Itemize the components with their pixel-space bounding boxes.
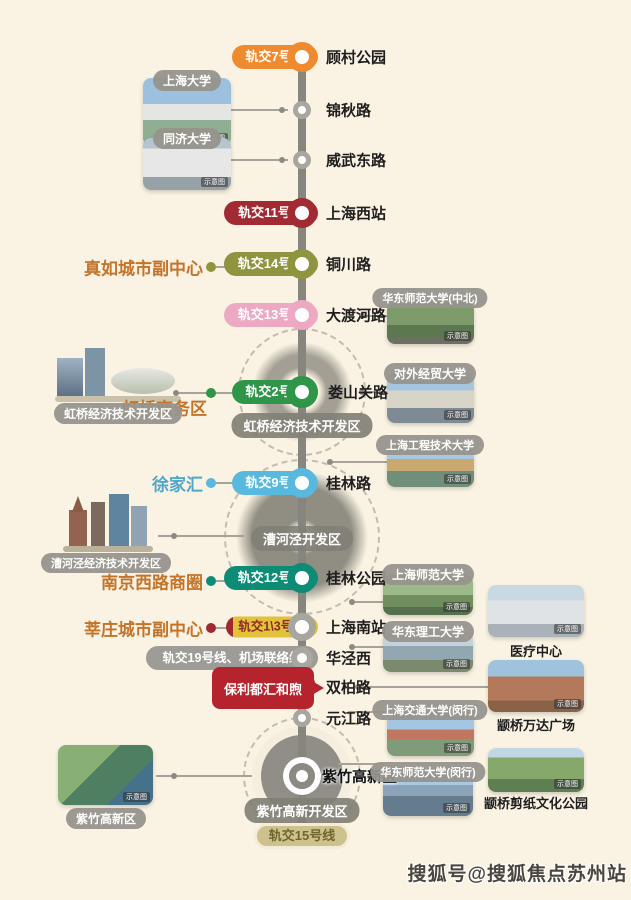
photo-label: 漕河泾经济技术开发区 — [41, 553, 171, 573]
photo-label: 华东理工大学 — [382, 621, 474, 642]
connector-dot — [279, 157, 285, 163]
building-silhouette — [57, 358, 83, 396]
photo-tag: 示意图 — [554, 779, 581, 789]
station-dot-gucun-park — [287, 42, 317, 72]
photo-zhuanqiao-papercut-park: 示意图 — [488, 748, 584, 792]
photo-ecnu-zhongbei: 示意图 — [387, 302, 474, 344]
building-silhouette — [131, 506, 147, 546]
station-dot-daduhe-rd — [287, 300, 317, 330]
station-label: 华泾西 — [326, 648, 371, 669]
area-dot — [206, 623, 216, 633]
poi-caption: 医疗中心 — [510, 641, 562, 660]
station-dot-shanghai-south — [288, 613, 316, 641]
station-label: 双柏路 — [326, 677, 371, 698]
photo-label: 上海大学 — [153, 70, 221, 91]
building-silhouette — [69, 510, 87, 546]
station-label: 桂林公园 — [326, 568, 386, 589]
area-label-xujiahui: 徐家汇 — [152, 471, 203, 496]
connector-line — [330, 461, 387, 463]
area-label-xinzhuang: 莘庄城市副中心 — [84, 616, 203, 641]
watermark: 搜狐号@搜狐焦点苏州站 — [407, 859, 627, 886]
connector-dot — [171, 533, 177, 539]
station-dot-tongchuan-rd — [287, 249, 317, 279]
photo-tag: 示意图 — [443, 803, 470, 813]
building-silhouette — [85, 348, 105, 396]
station-label: 锦秋路 — [326, 100, 371, 121]
collage-xujiahui-buildings — [63, 488, 155, 554]
station-target-zizhu-inner — [289, 763, 315, 789]
station-dot-guilin-park — [287, 563, 317, 593]
station-dot-jinqiu-rd — [293, 101, 311, 119]
photo-label: 华东师范大学(闵行) — [370, 762, 485, 782]
area-dot — [206, 576, 216, 586]
photo-label: 上海师范大学 — [382, 564, 474, 585]
connector-dot — [327, 459, 333, 465]
station-label: 威武东路 — [326, 150, 386, 171]
area-label-zhenru: 真如城市副中心 — [84, 255, 203, 280]
station-dot-weiwu-east-rd — [293, 151, 311, 169]
connector-line — [352, 601, 383, 603]
transit-infographic: 轨交7号线 轨交11号线 轨交14号线 轨交13号线 轨交2号线 轨交9号线 轨… — [0, 0, 631, 900]
station-label: 元江路 — [326, 708, 371, 729]
building-silhouette — [72, 496, 84, 512]
station-label: 娄山关路 — [328, 382, 388, 403]
hub-label-hongqiao: 虹桥经济技术开发区 — [231, 413, 372, 438]
photo-label: 上海交通大学(闵行) — [372, 700, 487, 720]
photo-tag: 示意图 — [443, 659, 470, 669]
photo-medical-center: 示意图 — [488, 585, 584, 637]
photo-tag: 示意图 — [554, 624, 581, 634]
photo-tag: 示意图 — [444, 410, 471, 420]
area-dot — [206, 262, 216, 272]
line-badge-15: 轨交15号线 — [254, 823, 350, 849]
poi-caption: 颛桥剪纸文化公园 — [484, 793, 588, 812]
photo-zhuanqiao-wanda: 示意图 — [488, 660, 584, 712]
photo-label: 紫竹高新区 — [66, 808, 146, 829]
building-silhouette — [63, 546, 153, 552]
station-label: 铜川路 — [326, 254, 371, 275]
photo-tag: 示意图 — [123, 792, 150, 802]
photo-tag: 示意图 — [444, 743, 471, 753]
station-dot-huajing-west — [291, 647, 313, 669]
poi-caption: 颛桥万达广场 — [497, 715, 575, 734]
station-label: 桂林路 — [326, 473, 371, 494]
connector-line — [358, 686, 488, 688]
photo-label: 同济大学 — [153, 128, 221, 149]
connector-dot — [279, 107, 285, 113]
building-silhouette — [91, 502, 105, 546]
station-dot-yuanjiang-rd — [293, 709, 311, 727]
hub-label-caohejing: 漕河泾开发区 — [251, 526, 353, 551]
photo-zizhu-hitech-zone: 示意图 — [58, 745, 153, 805]
station-dot-shanghai-west — [287, 198, 317, 228]
photo-tag: 示意图 — [554, 699, 581, 709]
station-label: 大渡河路 — [326, 305, 386, 326]
connector-dot — [171, 773, 177, 779]
project-box-poly: 保利都汇和煦 — [212, 667, 314, 709]
building-silhouette — [111, 368, 175, 394]
area-dot — [206, 478, 216, 488]
photo-tag: 示意图 — [443, 602, 470, 612]
connector-line — [216, 482, 232, 484]
connector-dot — [349, 599, 355, 605]
photo-tag: 示意图 — [444, 474, 471, 484]
photo-label: 上海工程技术大学 — [376, 435, 484, 455]
photo-tag: 示意图 — [201, 177, 228, 187]
photo-label: 虹桥经济技术开发区 — [54, 403, 182, 424]
photo-tag: 示意图 — [444, 331, 471, 341]
station-dot-loushanguan-rd — [286, 376, 318, 408]
station-label: 上海南站 — [326, 617, 386, 638]
station-label: 顾村公园 — [326, 47, 386, 68]
photo-label: 华东师范大学(中北) — [372, 288, 487, 308]
photo-label: 对外经贸大学 — [384, 363, 476, 384]
building-silhouette — [109, 494, 129, 546]
station-label: 上海西站 — [326, 203, 386, 224]
area-dot — [206, 388, 216, 398]
station-dot-guilin-rd — [287, 468, 317, 498]
hub-label-zizhu: 紫竹高新开发区 — [244, 798, 359, 823]
